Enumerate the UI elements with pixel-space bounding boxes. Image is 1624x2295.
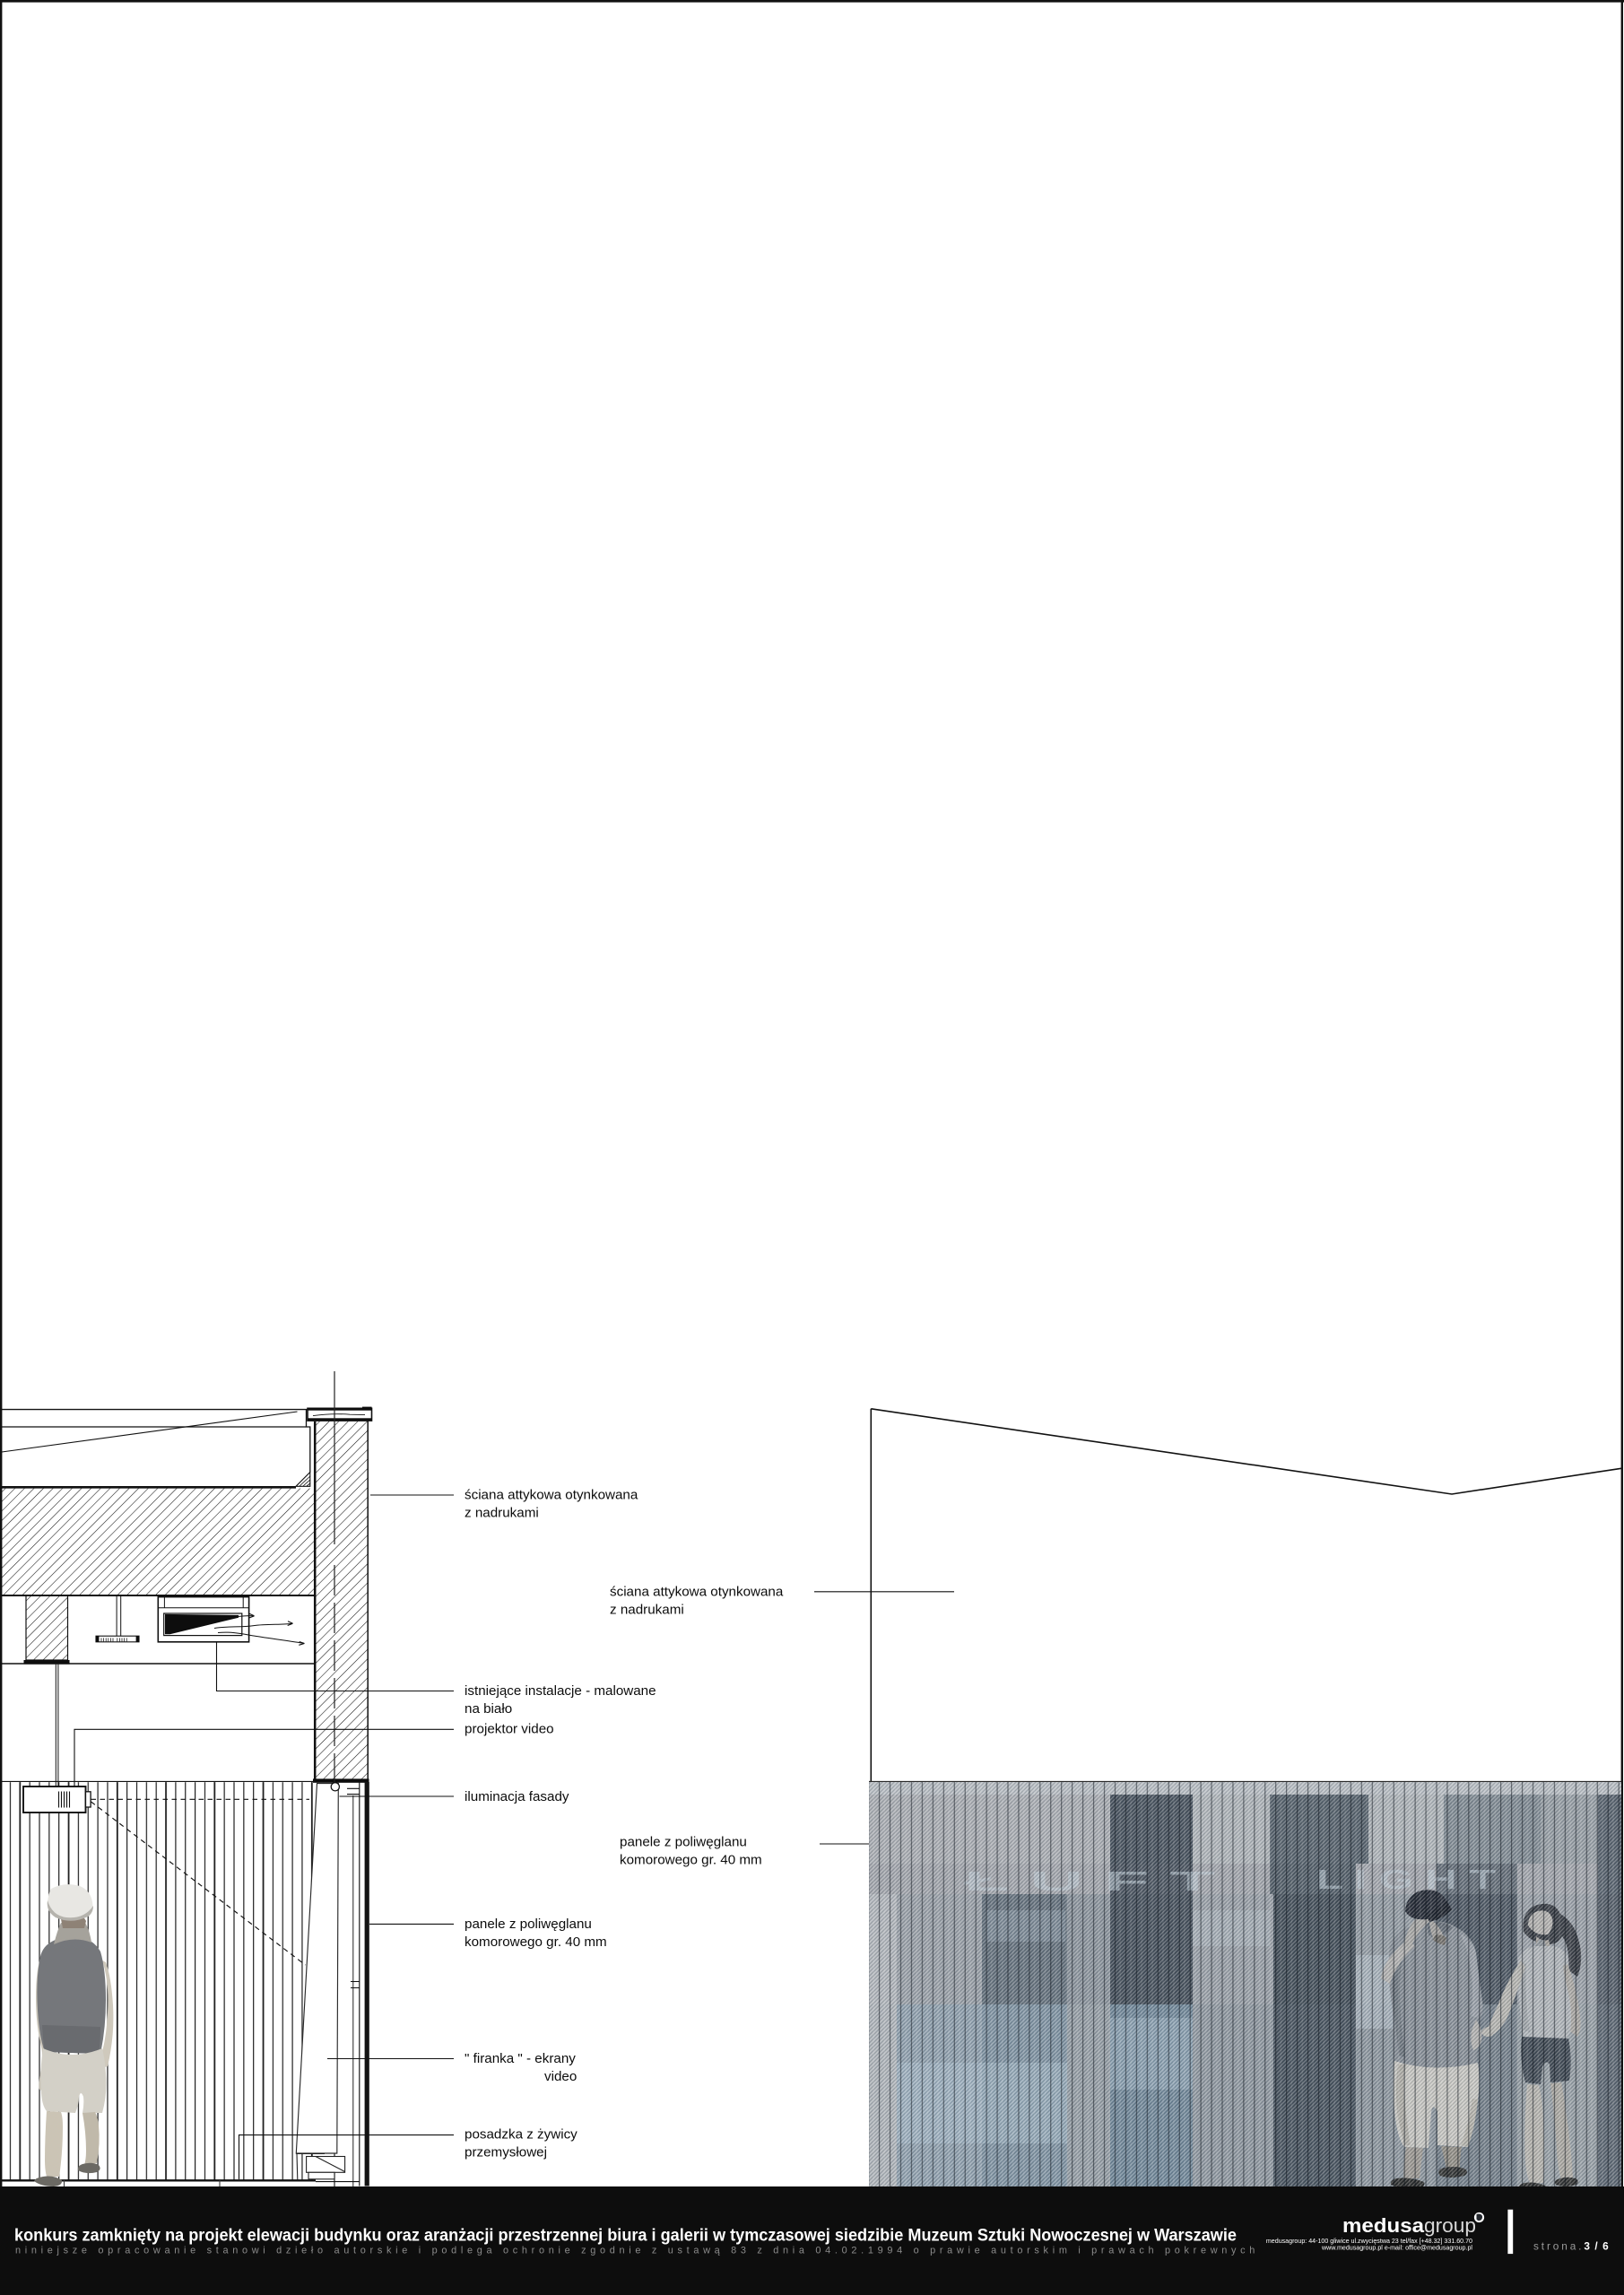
svg-text:komorowego gr. 40 mm: komorowego gr. 40 mm: [465, 1934, 607, 1950]
svg-text:video: video: [544, 2069, 577, 2084]
svg-text:ściana attykowa otynkowana: ściana attykowa otynkowana: [465, 1488, 638, 1503]
svg-text:niniejsze opracowanie stanowi: niniejsze opracowanie stanowi dzieło aut…: [15, 2246, 1259, 2256]
svg-text:projektor video: projektor video: [465, 1722, 554, 1737]
svg-text:komorowego gr. 40 mm: komorowego gr. 40 mm: [620, 1853, 762, 1868]
svg-text:posadzka z żywicy: posadzka z żywicy: [465, 2127, 578, 2143]
svg-text:" firanka " - ekrany: " firanka " - ekrany: [465, 2051, 576, 2066]
svg-text:istniejące instalacje - malowa: istniejące instalacje - malowane: [465, 1683, 656, 1699]
svg-text:medusagroup: medusagroup: [1342, 2214, 1476, 2237]
svg-text:na biało: na biało: [465, 1701, 512, 1717]
svg-text:www.medusagroup.pl e-mail: off: www.medusagroup.pl e-mail: office@medusa…: [1321, 2245, 1472, 2252]
svg-text:iluminacja fasady: iluminacja fasady: [465, 1789, 569, 1804]
svg-text:panele z poliwęglanu: panele z poliwęglanu: [620, 1835, 747, 1850]
svg-text:z nadrukami: z nadrukami: [610, 1603, 684, 1618]
svg-text:ściana attykowa otynkowana: ściana attykowa otynkowana: [610, 1585, 784, 1600]
svg-text:konkurs zamknięty na projekt e: konkurs zamknięty na projekt elewacji bu…: [14, 2226, 1237, 2246]
svg-text:z nadrukami: z nadrukami: [465, 1506, 539, 1521]
svg-text:przemysłowej: przemysłowej: [465, 2145, 547, 2160]
svg-text:panele z poliwęglanu: panele z poliwęglanu: [465, 1917, 592, 1932]
svg-text:strona.3 / 6: strona.3 / 6: [1533, 2240, 1610, 2253]
